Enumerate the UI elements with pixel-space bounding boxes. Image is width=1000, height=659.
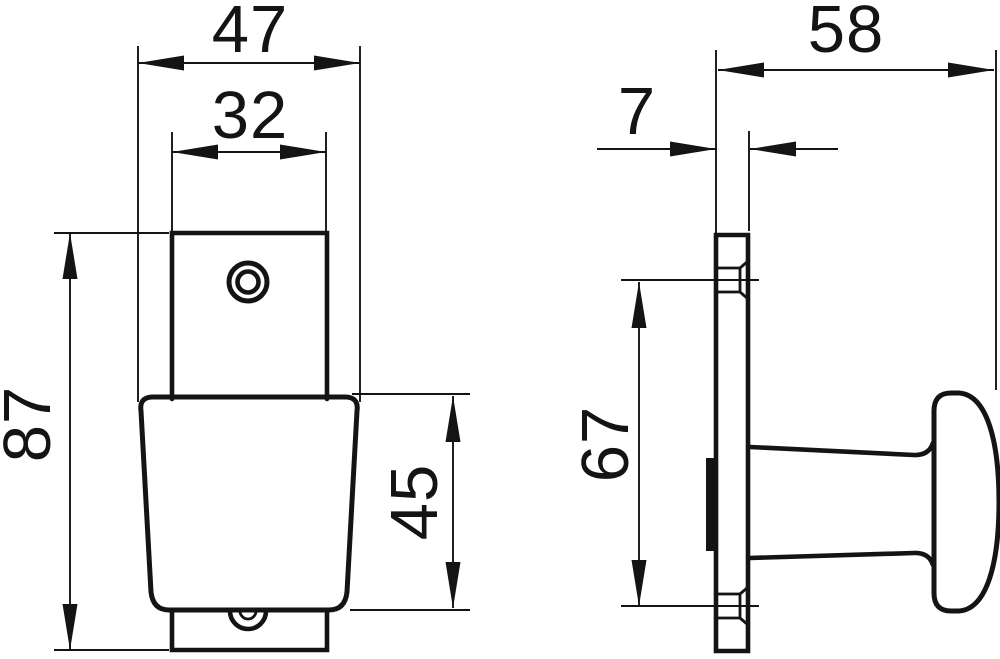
technical-drawing-page: 47 32 87	[0, 0, 1000, 659]
front-view: 47 32 87	[0, 0, 470, 650]
dim-label-58: 58	[808, 0, 885, 67]
side-neck-bottom	[750, 553, 933, 565]
dim-depth: 58	[716, 0, 996, 390]
dim-label-7: 7	[618, 74, 656, 149]
side-plate	[716, 235, 748, 651]
arrowhead-bottom	[632, 560, 647, 606]
arrowhead-bottom	[446, 562, 461, 608]
side-view: 58 7 67	[568, 0, 999, 651]
dim-label-47: 47	[212, 0, 289, 67]
front-screw-hole-inner	[238, 272, 259, 293]
dim-label-45: 45	[377, 464, 452, 541]
arrowhead-top	[632, 282, 647, 328]
arrowhead-right	[750, 142, 796, 157]
front-screw-hole-outer	[229, 263, 267, 301]
arrowhead-top	[63, 233, 78, 279]
arrowhead-left	[718, 63, 764, 78]
technical-drawing-canvas: 47 32 87	[0, 0, 1000, 659]
front-knob-face	[141, 397, 358, 610]
front-backplate-top	[172, 233, 327, 399]
dim-label-87: 87	[0, 386, 65, 463]
arrowhead-left	[670, 142, 716, 157]
side-spindle-hub	[706, 458, 717, 551]
dim-knob-height: 45	[350, 394, 470, 610]
arrowhead-right	[948, 63, 994, 78]
side-knob-head	[934, 393, 999, 611]
arrowhead-bottom	[63, 604, 78, 650]
dim-plate-thickness: 7	[597, 74, 838, 231]
dim-hole-spacing: 67	[568, 280, 759, 606]
arrowhead-right	[314, 56, 360, 71]
arrowhead-left	[138, 56, 184, 71]
dim-label-67: 67	[568, 406, 643, 483]
side-neck-top	[750, 443, 933, 455]
arrowhead-top	[446, 396, 461, 442]
dim-plate-width: 32	[172, 78, 326, 231]
dim-label-32: 32	[212, 78, 289, 153]
